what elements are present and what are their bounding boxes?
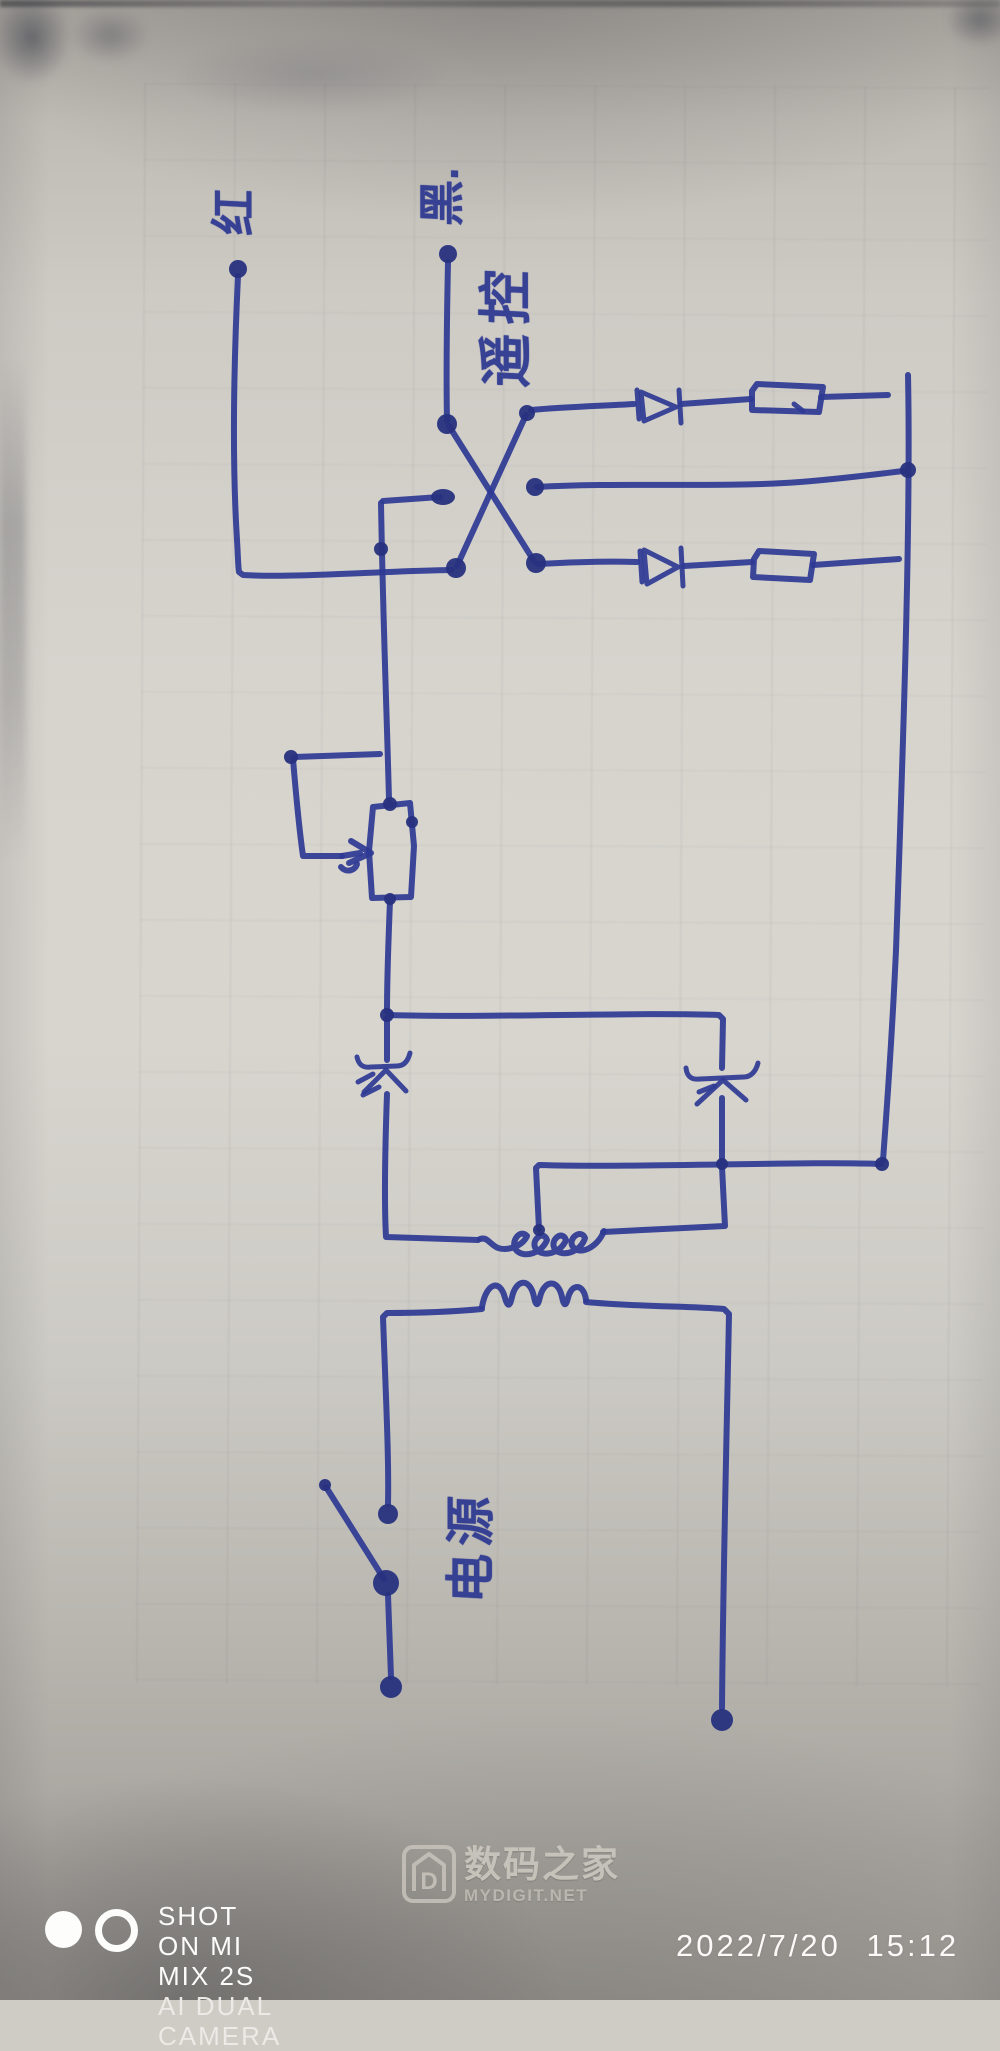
- resistor-top-icon: [752, 384, 823, 412]
- watermark-site-name: 数码之家: [464, 1845, 620, 1885]
- ai-dual-camera-line: AI DUAL CAMERA: [158, 1991, 281, 2051]
- svg-text:D: D: [420, 1868, 437, 1895]
- junction-dots: [229, 245, 916, 1731]
- label-black-wire: 黑.: [406, 165, 472, 227]
- relay-coil-box: [293, 754, 414, 898]
- label-remote-control: 遥控: [462, 259, 541, 389]
- label-power-source: 电源: [431, 1487, 503, 1605]
- lens-dot-filled-icon: [45, 1911, 82, 1948]
- branch-diode-bottom-icon: [640, 548, 683, 586]
- camera-watermark-text: SHOT ON MI MIX 2S AI DUAL CAMERA: [158, 1901, 281, 2051]
- mydigit-logo-icon: D: [402, 1845, 456, 1903]
- branch-diode-top-icon: [637, 390, 681, 423]
- label-red-wire: 红: [198, 187, 264, 236]
- watermark-site-url: MYDIGIT.NET: [464, 1886, 620, 1906]
- shot-on-line: SHOT ON MI MIX 2S: [158, 1901, 281, 1991]
- photo-timestamp: 2022/7/20 15:12: [676, 1928, 959, 1964]
- mydigit-text: 数码之家 MYDIGIT.NET: [464, 1845, 620, 1906]
- transformer-windings: [383, 1231, 729, 1708]
- resistor-bottom-icon: [753, 551, 814, 580]
- lens-dot-ring-icon: [95, 1909, 138, 1952]
- rectifier-diode-left-icon: [357, 1053, 410, 1095]
- mydigit-watermark: D 数码之家 MYDIGIT.NET: [402, 1845, 620, 1906]
